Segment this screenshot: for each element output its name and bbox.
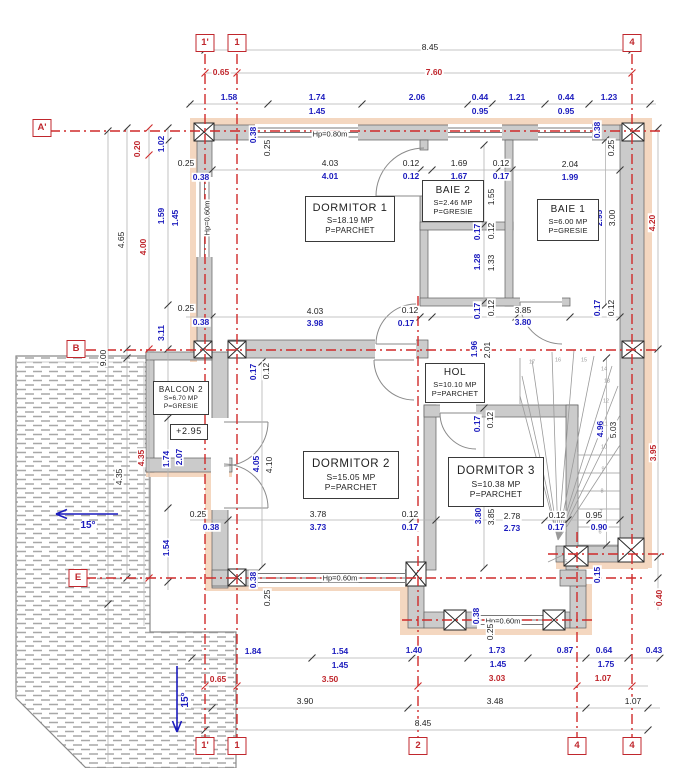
windows bbox=[200, 128, 592, 625]
dimension-label: 0.38 bbox=[472, 607, 481, 626]
room-detail: P=PARCHET bbox=[325, 482, 377, 493]
dimension-label: 1.54 bbox=[331, 647, 350, 656]
dimension-label: 0.12 bbox=[492, 159, 511, 168]
dimension-label: 4.35 bbox=[115, 468, 124, 487]
dimension-label: 4.35 bbox=[137, 449, 146, 468]
dimension-label: 0.25 bbox=[177, 159, 196, 168]
room-label-box: DORMITOR 1S=18.19 MPP=PARCHET bbox=[305, 196, 395, 242]
dimension-label: 3.90 bbox=[296, 697, 315, 706]
dimension-label: 1.96 bbox=[470, 340, 479, 359]
dimension-label: 3.80 bbox=[514, 318, 533, 327]
dimension-label: 3.11 bbox=[157, 324, 166, 342]
dimension-label: 2.07 bbox=[175, 448, 184, 467]
dimension-label: 1.45 bbox=[171, 209, 180, 228]
dimension-label: 1.45 bbox=[331, 661, 350, 670]
dimension-label: 0.12 bbox=[487, 222, 496, 241]
dimension-label: 3.85 bbox=[487, 508, 496, 527]
grid-axis-bubble: 4 bbox=[623, 34, 642, 52]
room-detail: P=PARCHET bbox=[325, 226, 374, 236]
stair-tread-number: 13 bbox=[604, 379, 610, 385]
stair-tread-number: 7 bbox=[599, 510, 602, 516]
dimension-label: 3.50 bbox=[321, 675, 340, 684]
grid-axis-bubble: B bbox=[67, 340, 86, 358]
room-label-box: HOLS=10.10 MPP=PARCHET bbox=[425, 363, 485, 403]
dimension-label: 1.23 bbox=[600, 93, 619, 102]
dimension-label: 3.03 bbox=[488, 674, 507, 683]
room-detail: S=6.70 MP bbox=[164, 395, 198, 403]
dimension-label: 3.73 bbox=[309, 523, 328, 532]
stair-tread-number: 14 bbox=[601, 367, 607, 373]
dimension-label: 0.64 bbox=[595, 646, 614, 655]
dimension-label: 0.15 bbox=[593, 566, 602, 585]
dimension-label: 0.44 bbox=[471, 93, 490, 102]
grid-axis-bubble: 4 bbox=[623, 737, 642, 755]
dimension-label: 0.25 bbox=[486, 623, 495, 642]
dimension-label: 3.98 bbox=[306, 319, 325, 328]
dimension-label: 7.60 bbox=[425, 68, 444, 77]
dimension-label: 1.59 bbox=[157, 207, 166, 226]
dimension-label: 0.17 bbox=[473, 415, 482, 434]
dimension-label: 4.20 bbox=[648, 214, 657, 233]
dimension-label: 0.25 bbox=[263, 589, 272, 608]
dimension-label: 9.00 bbox=[99, 349, 108, 368]
grid-axis-bubble: A' bbox=[33, 119, 52, 137]
dimension-label: 2.04 bbox=[561, 160, 580, 169]
stair-tread-number: 8 bbox=[600, 489, 603, 495]
room-detail: S=2.46 MP bbox=[433, 198, 472, 207]
dimension-label: 0.20 bbox=[133, 140, 142, 159]
dimension-label: Hp=0.80m bbox=[312, 130, 349, 138]
dimension-label: Hp=0.60m bbox=[322, 574, 359, 582]
stair-tread-number: 17 bbox=[529, 360, 535, 366]
dimension-label: 3.95 bbox=[649, 444, 658, 463]
dimension-label: 0.95 bbox=[557, 107, 576, 116]
dimension-label: 0.17 bbox=[593, 299, 602, 318]
dimension-label: 3.48 bbox=[486, 697, 505, 706]
room-label-box: BALCON 2S=6.70 MPP=GRESIE bbox=[153, 381, 209, 415]
room-detail: P=GRESIE bbox=[164, 403, 198, 411]
dimension-label: 0.95 bbox=[471, 107, 490, 116]
dimension-label: 3.78 bbox=[309, 510, 328, 519]
room-detail: P=GRESIE bbox=[433, 207, 472, 216]
dimension-label: 2.06 bbox=[408, 93, 427, 102]
stair-tread-number: 15 bbox=[581, 358, 587, 364]
room-label-box: DORMITOR 3S=10.38 MPP=PARCHET bbox=[448, 457, 544, 507]
dimension-label: Hp=0.60m bbox=[203, 200, 211, 237]
room-detail: S=6.00 MP bbox=[548, 217, 587, 226]
grid-axis-bubble: 1 bbox=[228, 34, 247, 52]
dimension-label: 0.12 bbox=[548, 511, 567, 520]
dimension-label: 0.12 bbox=[486, 411, 495, 430]
dimension-label: 0.17 bbox=[249, 363, 258, 382]
dimension-label: 4.05 bbox=[252, 455, 261, 474]
room-detail: P=PARCHET bbox=[470, 489, 522, 500]
dimension-label: 1.99 bbox=[561, 173, 580, 182]
room-name: DORMITOR 1 bbox=[313, 202, 388, 216]
dimension-label: 1.28 bbox=[473, 253, 482, 272]
room-label-box: BAIE 2S=2.46 MPP=GRESIE bbox=[422, 180, 484, 222]
stair-tread-number: 5 bbox=[564, 560, 567, 566]
dimension-label: 1.55 bbox=[487, 188, 496, 207]
dimension-label: 0.38 bbox=[202, 523, 221, 532]
room-label-box: +2.95 bbox=[170, 424, 208, 440]
dimension-label: 3.80 bbox=[474, 507, 483, 526]
dimension-label: 3.00 bbox=[608, 209, 617, 228]
dimension-label: 3.85 bbox=[514, 306, 533, 315]
room-detail: P=GRESIE bbox=[548, 226, 587, 235]
dimension-label: 0.38 bbox=[192, 318, 211, 327]
room-label-box: DORMITOR 2S=15.05 MPP=PARCHET bbox=[303, 451, 399, 499]
dimension-label: 15° bbox=[181, 691, 191, 708]
dimension-label: 0.17 bbox=[473, 223, 482, 242]
stair-tread-number: 12 bbox=[603, 399, 609, 405]
room-detail: S=18.19 MP bbox=[327, 216, 373, 226]
dimension-label: 0.17 bbox=[473, 302, 482, 321]
dimension-label: 0.12 bbox=[487, 299, 496, 318]
dimension-label: 0.25 bbox=[189, 510, 208, 519]
stair-tread-number: 6 bbox=[598, 530, 601, 536]
dimension-label: 4.65 bbox=[117, 231, 126, 250]
dimension-label: 1.33 bbox=[487, 254, 496, 273]
dimension-label: 1.02 bbox=[157, 135, 166, 154]
dimension-label: 0.12 bbox=[402, 172, 421, 181]
dimension-label: 1.21 bbox=[508, 93, 527, 102]
dimension-label: 1.07 bbox=[594, 674, 613, 683]
dimension-label: 4.03 bbox=[321, 159, 340, 168]
dimension-label: 2.01 bbox=[483, 341, 492, 360]
room-label-box: BAIE 1S=6.00 MPP=GRESIE bbox=[537, 199, 599, 241]
grid-axis-bubble: 2 bbox=[409, 737, 428, 755]
dimension-label: 0.44 bbox=[557, 93, 576, 102]
room-detail: S=10.10 MP bbox=[433, 380, 476, 389]
dimension-label: 0.17 bbox=[397, 319, 416, 328]
dimension-label: 1.69 bbox=[450, 159, 469, 168]
stair-tread-number: 16 bbox=[555, 358, 561, 364]
dimension-label: 2.73 bbox=[503, 524, 522, 533]
room-name: DORMITOR 2 bbox=[312, 457, 390, 471]
dimension-label: 0.25 bbox=[607, 139, 616, 158]
dimension-label: 0.12 bbox=[402, 159, 421, 168]
grid-axis-bubble: 1' bbox=[196, 737, 215, 755]
dimension-label: 1.74 bbox=[308, 93, 327, 102]
room-name: HOL bbox=[444, 367, 466, 380]
dimension-label: 0.38 bbox=[249, 126, 258, 145]
dimension-label: 1.73 bbox=[488, 646, 507, 655]
dimension-label: 1.45 bbox=[489, 660, 508, 669]
room-name: BALCON 2 bbox=[159, 385, 203, 395]
dimension-label: 1.07 bbox=[624, 697, 643, 706]
room-detail: S=15.05 MP bbox=[326, 472, 375, 483]
dimension-label: 0.43 bbox=[645, 646, 664, 655]
grid-axis-bubble: E bbox=[69, 569, 88, 587]
dimension-label: 2.78 bbox=[503, 512, 522, 521]
dimension-label: 0.12 bbox=[262, 362, 271, 381]
dimension-label: 15° bbox=[79, 521, 96, 531]
dimension-label: 4.01 bbox=[321, 172, 340, 181]
dimension-label: 4.03 bbox=[306, 307, 325, 316]
grid-axis-bubble: 1' bbox=[196, 34, 215, 52]
room-name: BAIE 2 bbox=[436, 185, 471, 198]
room-name: BAIE 1 bbox=[551, 204, 586, 217]
dimension-label: 4.10 bbox=[265, 456, 274, 475]
grid-axis-bubble: 1 bbox=[228, 737, 247, 755]
dimension-label: 0.40 bbox=[655, 589, 664, 608]
stair-tread-number: 9 bbox=[601, 467, 604, 473]
dimension-label: 0.17 bbox=[401, 523, 420, 532]
dimension-label: 0.65 bbox=[212, 68, 231, 77]
dimension-label: 1.84 bbox=[244, 647, 263, 656]
dimension-label: 0.65 bbox=[209, 675, 228, 684]
dimension-label: 1.74 bbox=[162, 450, 171, 469]
dimension-label: 0.17 bbox=[492, 172, 511, 181]
room-name: DORMITOR 3 bbox=[457, 464, 535, 478]
dimension-label: 8.45 bbox=[421, 43, 440, 52]
dimension-label: 0.25 bbox=[177, 304, 196, 313]
stair-tread-number: 11 bbox=[602, 422, 608, 428]
dimension-label: 5.03 bbox=[609, 421, 618, 440]
grid-axis-bubble: 4 bbox=[568, 737, 587, 755]
dimension-label: 0.12 bbox=[607, 299, 616, 318]
dimension-label: 0.17 bbox=[547, 523, 566, 532]
dimension-label: 1.54 bbox=[162, 539, 171, 558]
dimension-label: 0.87 bbox=[556, 646, 575, 655]
room-name: +2.95 bbox=[176, 426, 202, 437]
dimension-label: 1.67 bbox=[450, 172, 469, 181]
room-detail: S=10.38 MP bbox=[471, 479, 520, 490]
dimension-label: 0.38 bbox=[249, 571, 258, 590]
stair-tread-number: 10 bbox=[601, 445, 607, 451]
dimension-label: 1.58 bbox=[220, 93, 239, 102]
dimension-label: 8.45 bbox=[414, 719, 433, 728]
dimension-label: 0.12 bbox=[401, 306, 420, 315]
dimension-label: 1.75 bbox=[597, 660, 616, 669]
dimension-label: 0.38 bbox=[593, 121, 602, 140]
terrace-hatch bbox=[16, 356, 236, 768]
dimension-label: 0.38 bbox=[192, 173, 211, 182]
dimension-label: 1.45 bbox=[308, 107, 327, 116]
dimension-label: 4.00 bbox=[139, 238, 148, 257]
dimension-label: 0.12 bbox=[401, 510, 420, 519]
room-detail: P=PARCHET bbox=[432, 389, 478, 398]
floor-plan: 8.450.657.601.581.742.060.441.210.441.23… bbox=[0, 0, 673, 768]
dimension-label: 1.40 bbox=[405, 646, 424, 655]
dimension-label: 0.25 bbox=[263, 139, 272, 158]
